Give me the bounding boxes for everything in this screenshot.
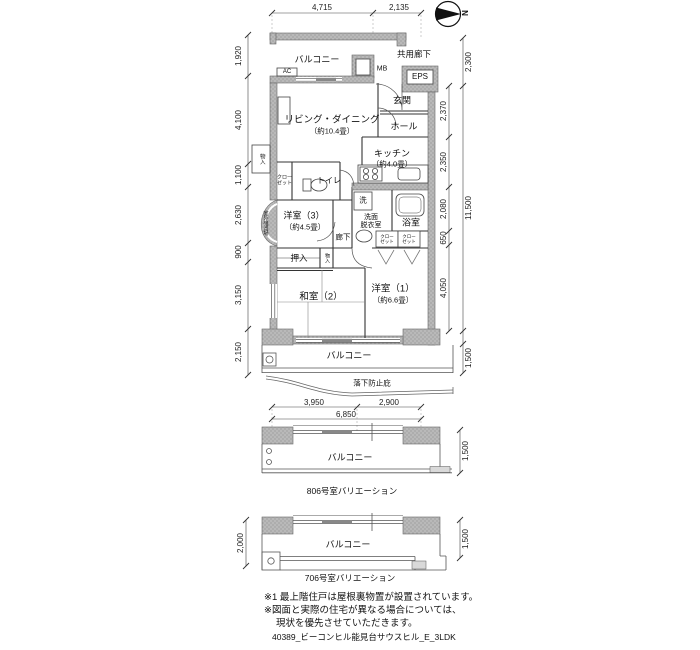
kitchen-label: キッチン	[374, 150, 410, 159]
dim-left-2630: 2,630	[235, 205, 243, 225]
ac-label: AC	[283, 69, 291, 75]
variation-806	[262, 423, 452, 473]
west-room3-size-label: （約4.5畳）	[285, 223, 325, 231]
note-1: ※1 最上階住戸は屋根裏物置が設置されています。	[264, 589, 478, 603]
v706-dim-1500: 1,500	[462, 529, 470, 549]
v806-dim-1500: 1,500	[462, 441, 470, 461]
dim-right-2300: 2,300	[465, 52, 473, 72]
dim-right-1500: 1,500	[465, 348, 473, 368]
dim-right-2080: 2,080	[440, 199, 448, 219]
note-2: ※図面と実際の住宅が異なる場合については、	[264, 602, 462, 616]
washer-label: 洗	[359, 196, 367, 204]
storage-left-label: 物入	[258, 154, 264, 165]
outdoor-unit-label: 室外機置場	[263, 211, 268, 236]
dim-top-right: 2,135	[389, 4, 409, 12]
washroom-line2: 脱衣室	[361, 222, 382, 230]
floor-plan-drawing	[0, 0, 700, 650]
dim-right-2370: 2,370	[440, 101, 448, 121]
mb-label: MB	[377, 66, 388, 73]
dim-bottom-2: 2,900	[379, 399, 399, 407]
toilet-label: トイレ	[317, 177, 341, 185]
west-room1-label: 洋室（1）	[371, 284, 414, 294]
dim-top-left: 4,715	[312, 4, 332, 12]
dim-bottom-1: 3,950	[304, 399, 324, 407]
closet-a-line2: ゼット	[380, 239, 394, 244]
washroom-line1: 洗面	[364, 214, 378, 222]
closet-toilet-line2: ゼット	[277, 181, 292, 187]
dim-right-4050: 4,050	[440, 278, 448, 298]
storage2-label: 物入	[324, 253, 329, 263]
corridor-label: 廊下	[336, 233, 351, 241]
living-size-label: （約10.4畳）	[310, 127, 355, 135]
oshiire-label: 押入	[290, 254, 307, 263]
note-3: 現状を優先させていただきます。	[276, 615, 418, 629]
v706-dim-2000: 2,000	[237, 533, 245, 553]
dim-bottom-total: 6,850	[336, 411, 356, 419]
dim-left-2150: 2,150	[235, 342, 243, 362]
v806-balcony-label: バルコニー	[328, 454, 373, 463]
v706-balcony-label: バルコニー	[326, 541, 371, 550]
japanese-room2-label: 和室（2）	[299, 292, 342, 302]
washroom-label: 洗面 脱衣室	[361, 214, 382, 230]
north-arrow-icon	[436, 2, 462, 27]
floor-plan-page: N 4,715 2,135 バルコニー AC MB 共用廊下 EPS 玄関 リビ…	[0, 0, 700, 650]
closet-b-label: クロー ゼット	[402, 234, 416, 244]
living-label: リビング・ダイニング	[284, 115, 379, 125]
v806-caption: 806号室バリエーション	[307, 487, 398, 496]
dim-left-3150: 3,150	[235, 285, 243, 305]
common-corridor-label: 共用廊下	[397, 50, 431, 59]
dim-right-2350: 2,350	[440, 152, 448, 172]
dim-left-900: 900	[235, 245, 243, 258]
kitchen-size-label: （約4.0畳）	[372, 160, 412, 168]
entrance-label: 玄関	[393, 97, 411, 106]
hall-label: ホール	[390, 123, 417, 132]
bathroom-label: 浴室	[402, 219, 420, 228]
dim-right-650: 650	[440, 231, 448, 244]
balcony-bottom-label: バルコニー	[327, 352, 372, 361]
closet-toilet-label: クロー ゼット	[277, 175, 292, 187]
footer-title: 40389_ビーコンヒル能見台サウスヒル_E_3LDK	[272, 631, 456, 643]
dim-right-11500: 11,500	[465, 196, 473, 220]
dim-left-1920: 1,920	[235, 46, 243, 66]
fall-guard-label: 落下防止庇	[353, 379, 391, 387]
closet-a-label: クロー ゼット	[380, 234, 394, 244]
dim-left-1100: 1,100	[235, 165, 243, 185]
eps-label: EPS	[412, 73, 428, 81]
west-room3-label: 洋室（3）	[283, 212, 324, 221]
closet-b-line2: ゼット	[402, 239, 416, 244]
dim-left-4100: 4,100	[235, 110, 243, 130]
balcony-top-label: バルコニー	[295, 56, 340, 65]
west-room1-size-label: （約6.6畳）	[373, 296, 413, 304]
v706-caption: 706号室バリエーション	[305, 574, 396, 583]
compass-north-label: N	[460, 10, 468, 16]
